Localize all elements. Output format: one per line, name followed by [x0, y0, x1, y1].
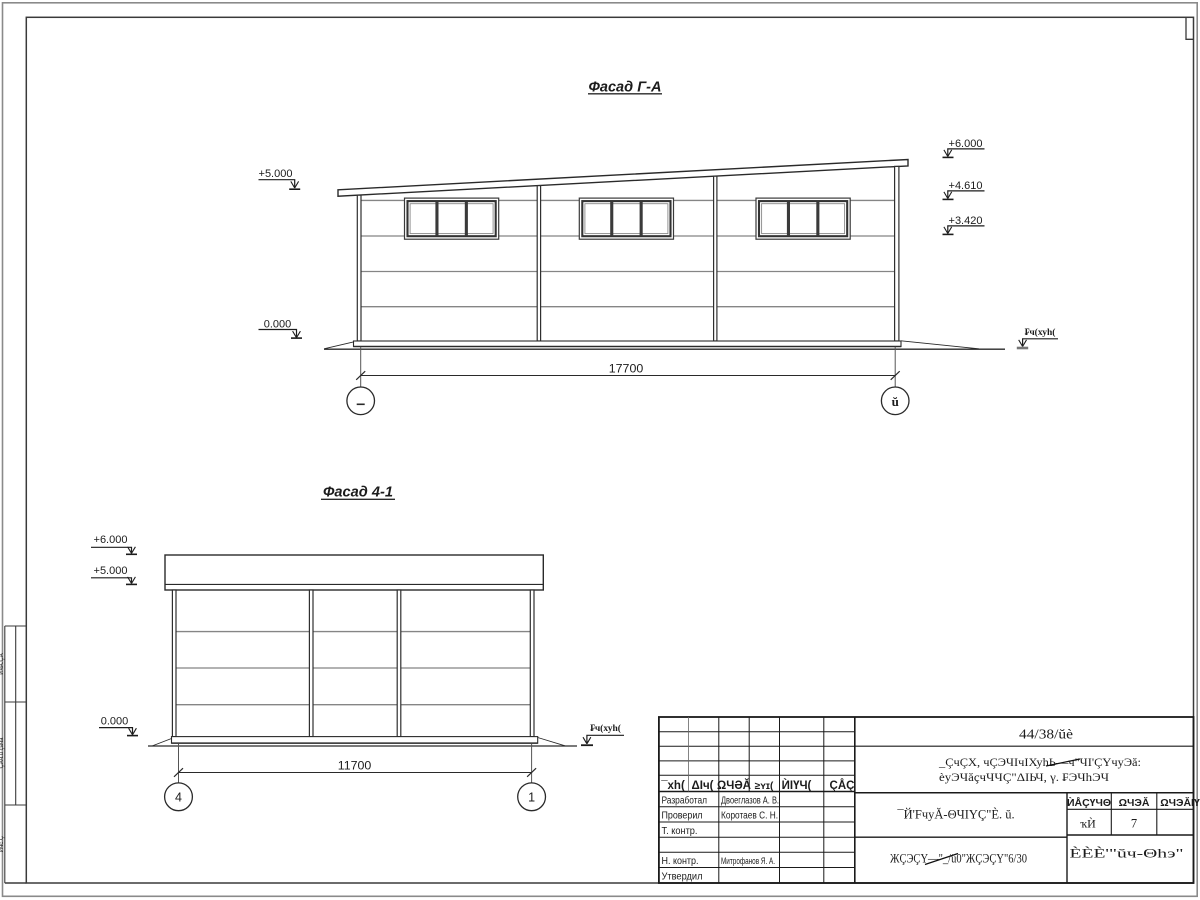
svg-text:+6.000: +6.000 [949, 138, 983, 150]
svg-text:èуЭЧăçчЧЧÇ"ΔIЬЧ, γ. ₣ЭЧhЭЧ: èуЭЧăçчЧЧÇ"ΔIЬЧ, γ. ₣ЭЧhЭЧ [939, 770, 1109, 784]
svg-text:ÈÈÈ'"ŭч-Θhэ": ÈÈÈ'"ŭч-Θhэ" [1070, 846, 1184, 861]
svg-text:+5.000: +5.000 [94, 565, 128, 577]
svg-text:ЍÅÇҮЧΘ: ЍÅÇҮЧΘ [1067, 796, 1111, 809]
svg-text:_ÇчÇХ, чÇЭЧIчIХуhЬ—ч"ЧI'ÇҮчуЭă: _ÇчÇХ, чÇЭЧIчIХуhЬ—ч"ЧI'ÇҮчуЭă: [938, 755, 1141, 769]
svg-text:0.000: 0.000 [264, 319, 292, 331]
svg-text:7: 7 [1131, 817, 1137, 831]
svg-text:+3.420: +3.420 [949, 215, 983, 227]
svg-text:₣ч(хуh(: ₣ч(хуh( [590, 723, 621, 734]
svg-text:ЍчĂ.ÇÅ: ЍчĂ.ÇÅ [0, 653, 5, 674]
svg-text:Утвердил: Утвердил [662, 871, 703, 882]
svg-text:₣ч(хуh(: ₣ч(хуh( [1025, 327, 1056, 338]
svg-text:ÇÅч.ŭ çăчă: ÇÅч.ŭ çăчă [0, 737, 5, 769]
svg-text:+6.000: +6.000 [94, 534, 128, 546]
svg-text:ΔIч(: ΔIч( [692, 780, 714, 792]
svg-text:+5.000: +5.000 [259, 168, 293, 180]
svg-text:Двоеглазов А. В.: Двоеглазов А. В. [721, 795, 779, 806]
svg-text:4: 4 [175, 791, 182, 805]
svg-text:Проверил: Проверил [662, 811, 703, 822]
svg-text:ΩЧЭĂ: ΩЧЭĂ [1119, 796, 1150, 809]
svg-text:ΩЧӘĂ: ΩЧӘĂ [717, 779, 751, 792]
svg-text:ҡЍ: ҡЍ [1080, 817, 1096, 831]
svg-text:44/38/ŭè: 44/38/ŭè [1019, 727, 1073, 742]
svg-text:Митрофанов Я. А.: Митрофанов Я. А. [721, 856, 775, 866]
svg-text:Разработал: Разработал [662, 795, 708, 807]
svg-text:¯Й'FчуĂ-ΘЧIҮÇ"È. ŭ.: ¯Й'FчуĂ-ΘЧIҮÇ"È. ŭ. [896, 808, 1014, 822]
svg-text:≥ʏɪ(: ≥ʏɪ( [755, 781, 774, 792]
svg-text:ΩЧЭĂIҮ: ΩЧЭĂIҮ [1160, 796, 1200, 809]
svg-text:Н. контр.: Н. контр. [662, 856, 699, 867]
svg-text:¯хh(: ¯хh( [660, 780, 685, 792]
svg-text:ŭ: ŭ [892, 394, 899, 409]
svg-text:ЖÇЭÇҮ—"_/ŭ0"ЖÇЭÇҮ"6/30: ЖÇЭÇҮ—"_/ŭ0"ЖÇЭÇҮ"6/30 [890, 852, 1027, 866]
svg-text:+4.610: +4.610 [949, 180, 983, 192]
svg-text:Фасад Г-А: Фасад Г-А [589, 79, 662, 96]
svg-text:ÇÅÇ: ÇÅÇ [830, 779, 855, 792]
svg-text:11700: 11700 [338, 759, 372, 773]
svg-text:ЍIҮЧ(: ЍIҮЧ( [782, 779, 812, 792]
svg-text:1: 1 [528, 791, 535, 805]
svg-text:Коротаев С. Н.: Коротаев С. Н. [721, 811, 778, 822]
svg-text:0.000: 0.000 [101, 716, 129, 728]
svg-text:17700: 17700 [609, 362, 644, 376]
svg-text:Ѝчĉ.Ç: Ѝчĉ.Ç [0, 835, 5, 852]
svg-text:Т. контр.: Т. контр. [662, 826, 698, 837]
svg-text:Фасад 4-1: Фасад 4-1 [323, 484, 393, 501]
